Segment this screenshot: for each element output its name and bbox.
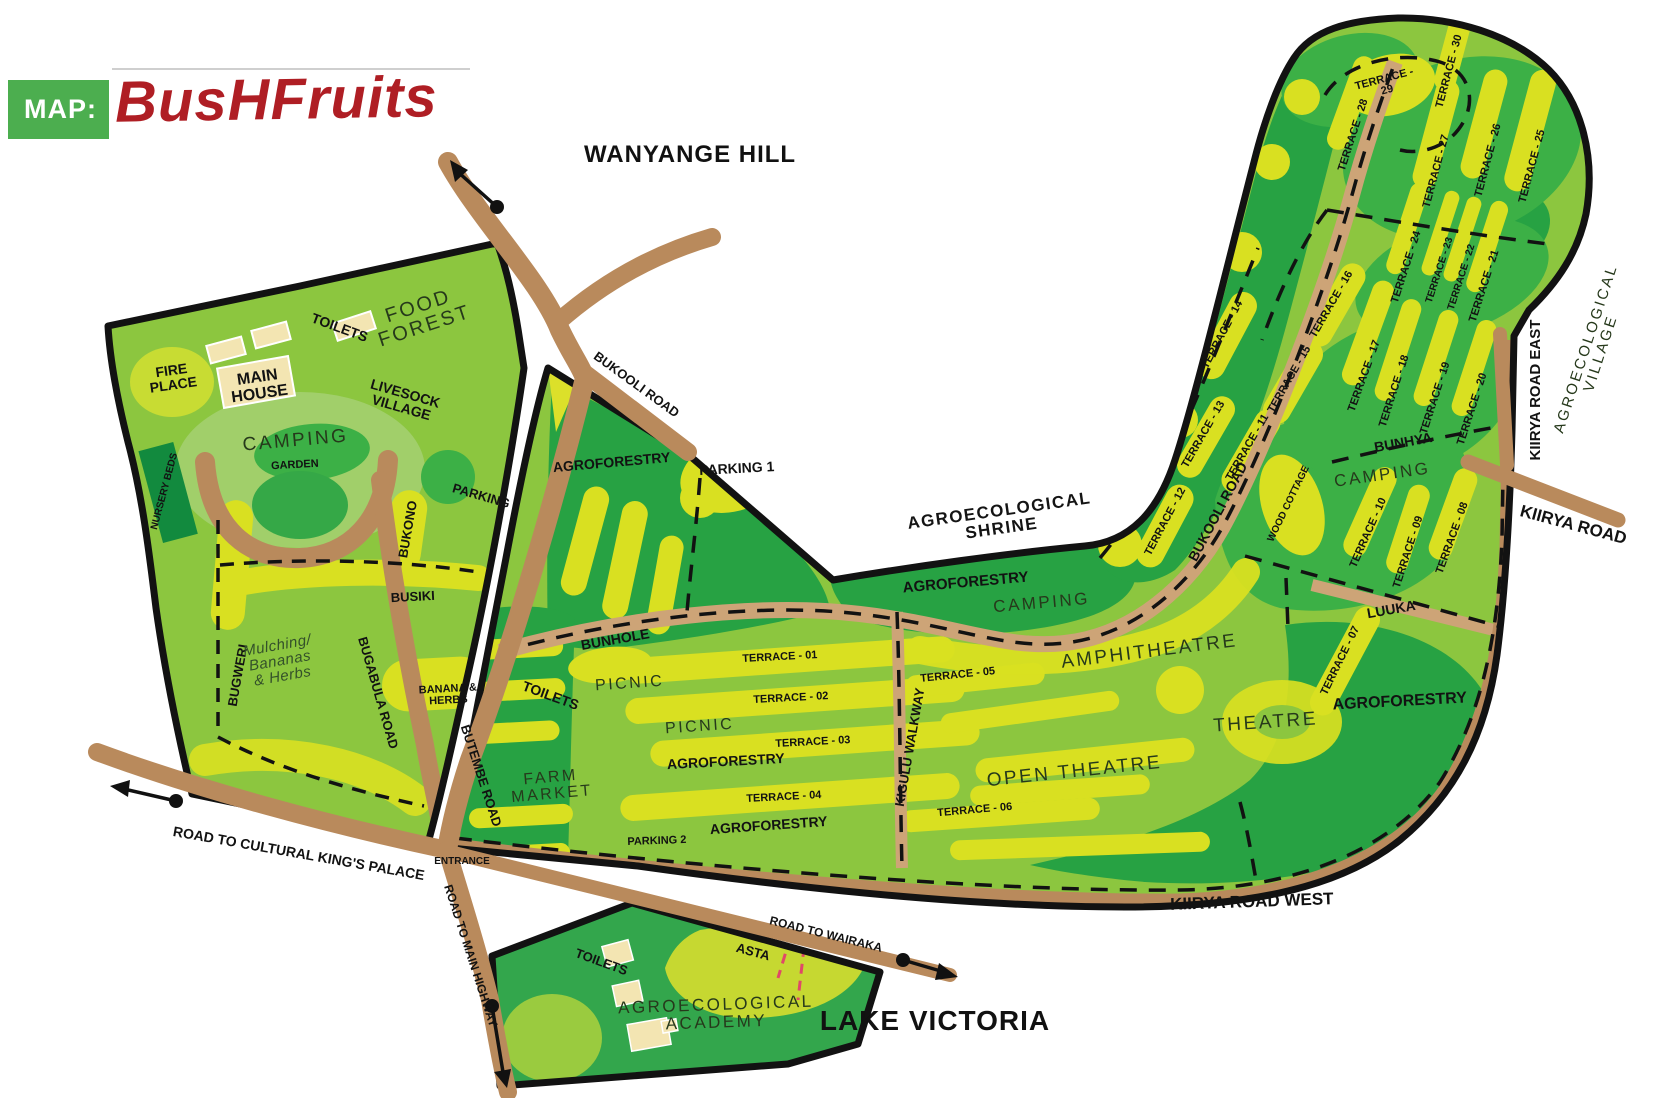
- label-entrance: ENTRANCE: [434, 856, 490, 867]
- label-lake-victoria: LAKE VICTORIA: [820, 1005, 1050, 1036]
- label-kiirya-road-east: KIIRYA ROAD EAST: [1527, 320, 1544, 461]
- label-wanyange-hill: WANYANGE HILL: [584, 141, 796, 168]
- logo: MAP: BusHFruits: [8, 80, 438, 139]
- label-garden: GARDEN: [271, 458, 319, 472]
- map-screenshot: WANYANGE HILLLAKE VICTORIAFOODFORESTTOIL…: [0, 0, 1664, 1098]
- map-chip: MAP:: [8, 80, 109, 139]
- label-agro-village: AGROECOLOGICALVILLAGE: [1550, 262, 1636, 440]
- brand-title: BusHFruits: [115, 71, 438, 129]
- kiirya-road-east-stub: [1500, 334, 1507, 465]
- label-parking-1: PARKING 1: [699, 458, 775, 478]
- bushfruits-map: WANYANGE HILLLAKE VICTORIAFOODFORESTTOIL…: [0, 0, 1664, 1098]
- label-agro-shrine: AGROECOLOGICALSHRINE: [906, 488, 1095, 550]
- label-busiki: BUSIKI: [390, 588, 435, 605]
- label-parking-2: PARKING 2: [627, 834, 686, 848]
- arrow-west-icon: [110, 780, 130, 797]
